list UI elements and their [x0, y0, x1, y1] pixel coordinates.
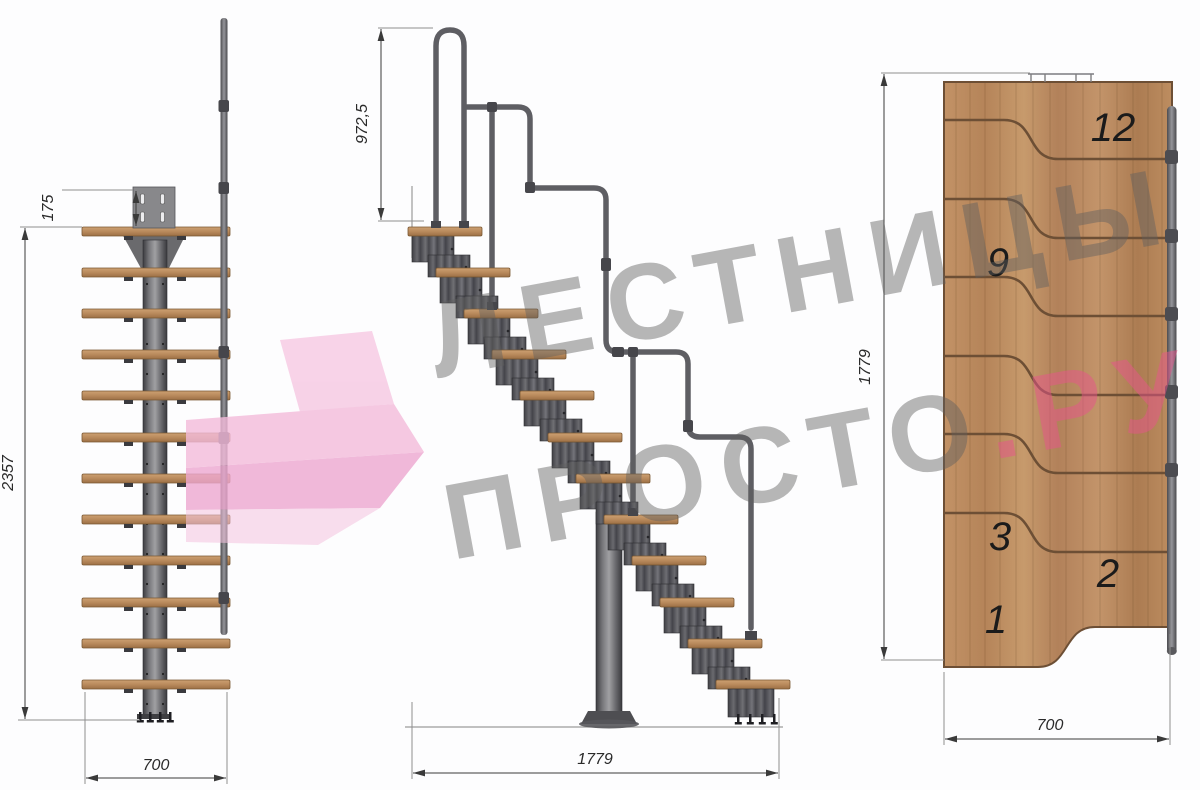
rail-sleeve — [1165, 463, 1178, 477]
bolt — [162, 703, 164, 705]
tread — [82, 598, 230, 607]
module-bolt — [451, 248, 454, 251]
anchor-foot — [771, 722, 778, 725]
bolt — [146, 583, 148, 585]
tread — [716, 680, 790, 689]
dim-1779-side: 1779 — [412, 698, 779, 779]
module-bolt — [675, 577, 678, 580]
tread-clamp — [124, 400, 133, 404]
tread-clamp — [124, 318, 133, 322]
bolt — [146, 613, 148, 615]
bottom-module — [728, 689, 774, 717]
handrail-segment-1 — [467, 107, 530, 186]
tread-clamp — [124, 359, 133, 363]
bolt — [162, 613, 164, 615]
tread-clamp — [177, 442, 186, 446]
dim-label-1779-plan: 1779 — [857, 349, 874, 385]
anchor-bolt — [149, 712, 152, 721]
tread-clamp — [177, 648, 186, 652]
tread-clamp — [177, 607, 186, 611]
bolt — [146, 673, 148, 675]
tread-clamp — [177, 565, 186, 569]
anchor-foot — [759, 722, 766, 725]
module-bolt — [703, 619, 706, 622]
module-bolt — [689, 595, 692, 598]
tread-clamp — [177, 236, 186, 240]
anchor-bolt — [169, 712, 172, 721]
top-mounting-plate — [133, 187, 175, 228]
tread-clamp — [177, 483, 186, 487]
tread — [632, 556, 706, 565]
module-bolt — [731, 660, 734, 663]
pole-sleeve — [219, 182, 230, 194]
tread-number-3: 3 — [989, 515, 1011, 559]
tread-clamp — [124, 483, 133, 487]
bolt — [146, 553, 148, 555]
bolt — [162, 343, 164, 345]
tread-clamp — [177, 277, 186, 281]
handrail-top-loop — [436, 30, 464, 227]
drawing-svg: 175 2357 700 — [0, 0, 1200, 790]
bolt — [146, 463, 148, 465]
dim-label-700-front: 700 — [143, 757, 170, 774]
tread-clamp — [124, 565, 133, 569]
bolt — [162, 373, 164, 375]
rail-sleeve — [1165, 307, 1178, 321]
dim-label-1779-side: 1779 — [577, 751, 613, 768]
bolt — [146, 373, 148, 375]
side-view: 972,5 1779 — [354, 28, 790, 779]
tread-clamp — [124, 648, 133, 652]
module-bolt — [563, 412, 566, 415]
tread-clamp — [177, 359, 186, 363]
plan-rail-end-cap — [1167, 647, 1177, 655]
bolt — [162, 403, 164, 405]
staircase-technical-drawing: 175 2357 700 — [0, 0, 1200, 790]
anchor-foot — [147, 720, 154, 723]
dim-label-175: 175 — [40, 195, 57, 222]
tread — [82, 350, 230, 359]
tread — [408, 227, 482, 236]
tread-clamp — [177, 689, 186, 693]
pole-sleeve — [219, 592, 230, 604]
dim-175: 175 — [20, 190, 136, 227]
bolt — [162, 283, 164, 285]
tread-clamp — [124, 524, 133, 528]
tread — [82, 639, 230, 648]
bolt — [146, 343, 148, 345]
bolt — [146, 403, 148, 405]
bolt — [162, 673, 164, 675]
anchor-foot — [735, 722, 742, 725]
pole-sleeve — [219, 346, 230, 358]
tread-number-1: 1 — [985, 598, 1007, 642]
tread — [82, 680, 230, 689]
bolt — [162, 553, 164, 555]
bolt — [162, 583, 164, 585]
tread-clamp — [124, 236, 133, 240]
tread — [82, 268, 230, 277]
tread — [660, 598, 734, 607]
anchor-bolt — [159, 712, 162, 721]
tread-number-12: 12 — [1091, 106, 1136, 150]
anchor-foot — [747, 722, 754, 725]
pole-sleeve — [219, 100, 230, 112]
bolt — [162, 463, 164, 465]
front-view: 175 2357 700 — [0, 18, 230, 784]
tread-clamp — [177, 318, 186, 322]
support-column-foot — [579, 720, 639, 729]
tread-clamp — [124, 277, 133, 281]
anchor-foot — [167, 720, 174, 723]
tread — [82, 391, 230, 400]
module-bolt — [577, 430, 580, 433]
tread-clamp — [177, 524, 186, 528]
tread-number-2: 2 — [1096, 552, 1119, 596]
dim-label-700-plan: 700 — [1037, 717, 1064, 734]
tread — [82, 309, 230, 318]
tread — [82, 556, 230, 565]
tread — [688, 639, 762, 648]
bolt — [146, 703, 148, 705]
dim-label-2357: 2357 — [0, 454, 17, 492]
bolt — [162, 493, 164, 495]
anchor-foot — [157, 720, 164, 723]
tread-clamp — [124, 442, 133, 446]
bolt — [146, 493, 148, 495]
top-mount-bracket — [1028, 74, 1094, 82]
tread — [520, 391, 594, 400]
bolt — [146, 283, 148, 285]
tread-clamp — [177, 400, 186, 404]
tread-clamp — [124, 607, 133, 611]
column-base-plate — [137, 714, 171, 719]
dim-972-5: 972,5 — [354, 28, 433, 221]
tread-clamp — [124, 689, 133, 693]
dim-label-972-5: 972,5 — [354, 104, 371, 144]
